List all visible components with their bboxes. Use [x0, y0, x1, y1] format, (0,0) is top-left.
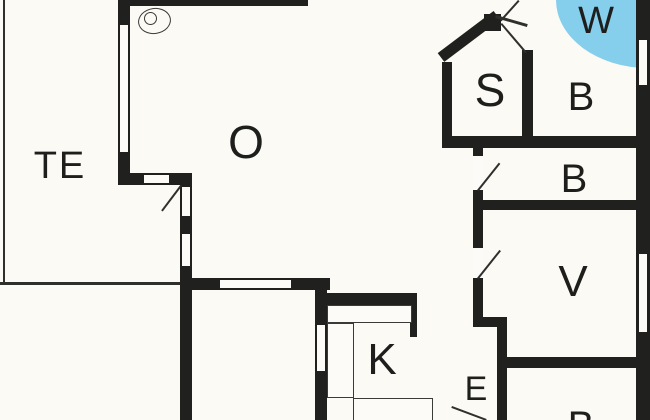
window-living-south: [219, 279, 292, 289]
wall-entry-east: [497, 327, 507, 420]
door-swing-terrace: [161, 185, 182, 212]
window-kitchen-west: [316, 324, 326, 372]
wall-sauna-bath-south: [442, 136, 650, 148]
wall-sauna-east: [522, 50, 533, 147]
label-room-v: V: [558, 260, 587, 304]
wall-west-lower: [180, 283, 192, 420]
label-living: O: [228, 119, 264, 165]
window-west-mid: [181, 233, 191, 267]
label-room-middle: B: [561, 159, 588, 199]
wall-room-divider-2: [505, 357, 650, 368]
wall-center-jog: [473, 317, 507, 327]
floor-plan: TE O S W B B V K E B: [0, 0, 650, 420]
label-entrance: E: [465, 372, 488, 406]
label-kitchen: K: [367, 338, 396, 382]
door-terrace: [181, 186, 191, 217]
label-terrace: TE: [34, 147, 87, 185]
wall-sauna-west: [442, 62, 452, 147]
label-whirlpool: W: [578, 2, 614, 40]
window-jog: [143, 174, 170, 184]
wall-kitchen-north: [327, 293, 417, 305]
wall-room-divider-1: [473, 200, 650, 210]
wood-stove-icon-inner: [144, 12, 157, 25]
door-swing-entrance: [451, 406, 486, 420]
label-room-bottom: B: [568, 406, 595, 420]
window-west: [119, 24, 129, 153]
window-bath-east: [638, 39, 648, 86]
terrace-edge-bottom: [0, 282, 182, 285]
kitchen-counter-side: [327, 323, 354, 398]
terrace-edge-left: [3, 0, 5, 285]
door-swing-sauna: [500, 23, 526, 53]
window-room-v-east: [638, 253, 648, 333]
label-bathroom: B: [568, 77, 595, 117]
kitchen-counter-top: [327, 305, 412, 323]
wall-north: [118, 0, 308, 6]
label-sauna: S: [475, 67, 506, 113]
kitchen-counter-bottom: [353, 398, 433, 420]
